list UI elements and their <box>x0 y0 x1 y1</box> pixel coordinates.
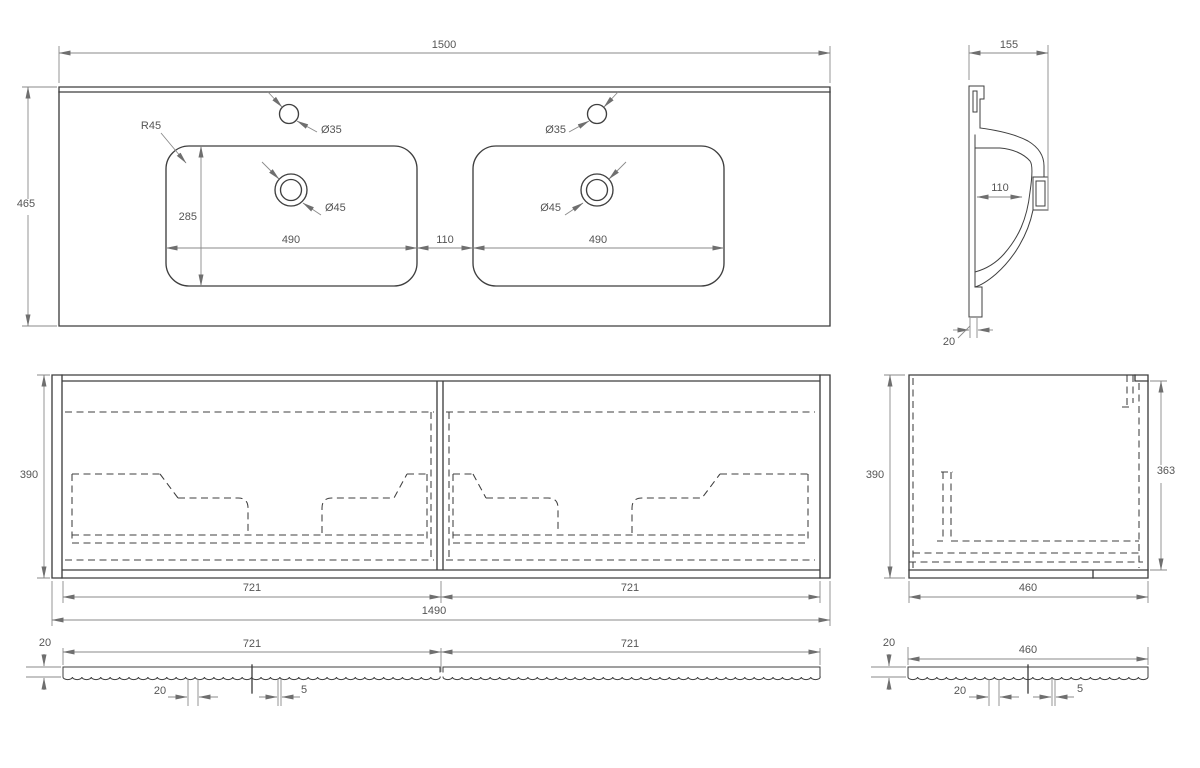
drawer-fronts-top-view: 20 721 721 20 5 <box>26 637 820 706</box>
dim-label: 5 <box>1077 683 1083 695</box>
dim-label: 363 <box>1157 465 1175 477</box>
dim-label: Ø45 <box>540 202 561 214</box>
front-right-break-line <box>443 677 820 680</box>
leader-line <box>565 203 583 215</box>
dim-drawer-front-right: 721 <box>441 581 820 603</box>
section-overflow-box <box>1033 177 1048 210</box>
dim-side-height: 390 <box>866 375 905 578</box>
section-flange-outline <box>969 86 984 317</box>
dim-panel-center-detail: 20 <box>954 679 1019 706</box>
dim-label: 460 <box>1019 644 1037 656</box>
side-details <box>909 375 1148 578</box>
dim-center-detail: 20 <box>154 679 218 706</box>
dim-label: 110 <box>436 234 454 246</box>
dim-drawer-front-left: 721 <box>63 581 441 603</box>
dim-label: 490 <box>589 234 607 246</box>
drawer-right-hidden-lines <box>446 412 815 560</box>
dim-label: 1490 <box>422 605 446 617</box>
technical-drawing-page: 1500 465 R45 Ø35 Ø35 Ø45 <box>0 0 1200 768</box>
dim-panel-width: 460 <box>908 644 1148 665</box>
dim-bowl-inner: 110 <box>977 182 1022 197</box>
leader-line <box>569 121 589 132</box>
dim-label: 465 <box>17 198 35 210</box>
drain-left-inner <box>281 180 302 201</box>
dim-label: 721 <box>243 582 261 594</box>
dim-label: 20 <box>883 637 895 649</box>
divider-hidden-lines <box>431 412 449 560</box>
faucet-hole-right <box>588 105 607 124</box>
dim-label: 110 <box>991 182 1009 194</box>
basin-section-view: 155 110 20 <box>943 39 1048 348</box>
dim-extension-lines <box>884 375 905 578</box>
leader-line <box>958 326 970 338</box>
dim-label: R45 <box>141 120 161 132</box>
leader-line <box>297 121 317 132</box>
leader-line <box>161 133 186 163</box>
basin-right-outline <box>473 146 724 286</box>
drain-left-outer <box>275 174 307 206</box>
leader-line <box>268 92 282 107</box>
dim-fronts-thickness: 20 <box>26 637 61 690</box>
dim-side-depth: 460 <box>909 581 1148 603</box>
dim-label: 390 <box>20 469 38 481</box>
cabinet-outline <box>52 375 830 578</box>
dim-extension-lines <box>26 667 61 677</box>
leader-line <box>609 162 626 179</box>
dim-cabinet-height: 390 <box>20 375 50 578</box>
dim-label: Ø35 <box>321 124 342 136</box>
dim-label: 20 <box>943 336 955 348</box>
dim-extension-lines <box>59 46 830 83</box>
dim-side-interior-height: 363 <box>1150 381 1175 570</box>
dim-label: 721 <box>621 638 639 650</box>
dim-label: Ø35 <box>545 124 566 136</box>
dim-label: 285 <box>179 211 197 223</box>
cabinet-panels <box>62 375 820 578</box>
dim-label: 390 <box>866 469 884 481</box>
dim-label: 155 <box>1000 39 1018 51</box>
dim-label: 5 <box>301 684 307 696</box>
side-panel-top-view: 20 460 20 5 <box>871 637 1148 706</box>
dim-basin-spacing: 110 <box>417 234 473 248</box>
section-deck-and-bowl <box>975 128 1044 287</box>
dim-extension-lines <box>970 318 977 338</box>
countertop-plan-view: 1500 465 R45 Ø35 Ø35 Ø45 <box>17 39 830 326</box>
dim-label: 20 <box>154 685 166 697</box>
cabinet-front-view: 390 721 721 1490 <box>20 375 830 626</box>
leader-corner-radius: R45 <box>141 120 186 163</box>
dim-label: 721 <box>621 582 639 594</box>
faucet-hole-left <box>280 105 299 124</box>
dim-panel-thickness: 20 <box>871 637 906 690</box>
dim-basin-depth: 285 <box>179 146 201 286</box>
fronts-top-edges <box>63 667 820 677</box>
dim-label: 490 <box>282 234 300 246</box>
dim-front-right-width: 721 <box>441 638 820 665</box>
dim-extension-lines <box>1052 679 1055 706</box>
leader-line <box>303 203 321 215</box>
dim-basin-width-left: 490 <box>166 234 417 248</box>
dim-countertop-width: 1500 <box>59 39 830 83</box>
vanity-technical-drawing: 1500 465 R45 Ø35 Ø35 Ø45 <box>0 0 1200 768</box>
dim-label: 20 <box>39 637 51 649</box>
basin-left-outline <box>166 146 417 286</box>
dim-flange-thickness: 20 <box>943 318 993 348</box>
dim-label: 721 <box>243 638 261 650</box>
leader-line <box>604 92 618 107</box>
dim-label: Ø45 <box>325 202 346 214</box>
dim-front-gap: 5 <box>259 679 307 706</box>
dim-extension-lines <box>989 679 999 706</box>
cabinet-side-view: 390 363 460 <box>866 375 1175 603</box>
drawer-left-hidden-lines <box>65 412 434 560</box>
dim-panel-gap: 5 <box>1033 679 1083 706</box>
dim-extension-lines <box>871 667 906 677</box>
dim-countertop-depth: 465 <box>17 87 57 326</box>
drain-right-inner <box>587 180 608 201</box>
side-hidden-lines <box>909 375 1143 568</box>
countertop-outline <box>59 87 830 326</box>
dim-basin-width-right: 490 <box>473 234 724 248</box>
drain-right-outer <box>581 174 613 206</box>
side-outline <box>909 375 1148 578</box>
dim-label: 20 <box>954 685 966 697</box>
dim-label: 460 <box>1019 582 1037 594</box>
dim-extension-lines <box>278 679 281 706</box>
leader-line <box>262 162 279 179</box>
dim-extension-lines <box>188 679 198 706</box>
dim-extension-lines <box>37 375 50 578</box>
dim-label: 1500 <box>432 39 456 51</box>
